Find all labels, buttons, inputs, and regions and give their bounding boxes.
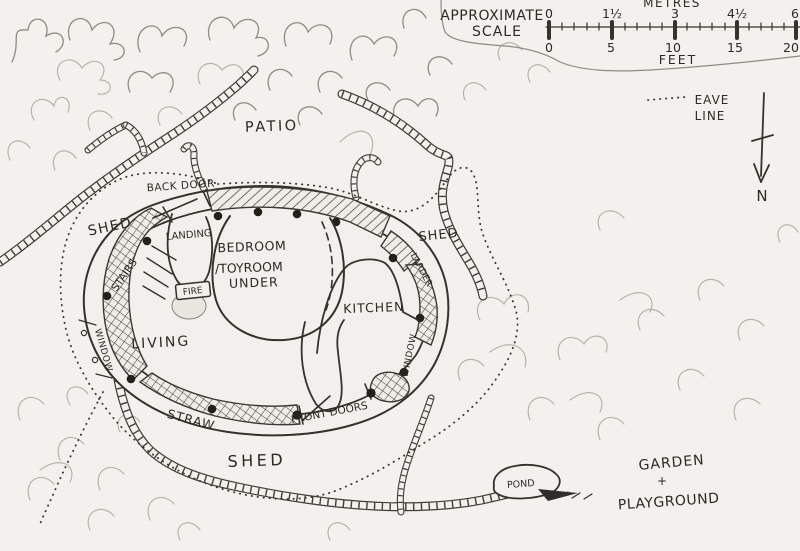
scale-ruler: APPROXIMATE SCALE METRES FEET 0 1½ 3 4½ …: [440, 0, 800, 67]
svg-text:6: 6: [791, 6, 799, 21]
svg-text:0: 0: [545, 40, 553, 55]
scale-heading-line2: SCALE: [472, 24, 522, 40]
eave-line-bottom-left: [40, 392, 103, 524]
scale-feet-ticks: 0 5 10 15 20: [545, 40, 799, 55]
label-pond: POND: [507, 478, 535, 491]
pond-wall-wedge: [538, 489, 578, 501]
eave-line-sample: [648, 97, 685, 100]
svg-text:3: 3: [671, 6, 679, 21]
scale-major-ticks: [549, 22, 796, 38]
svg-text:1½: 1½: [602, 6, 622, 21]
svg-text:20: 20: [783, 40, 799, 55]
svg-text:10: 10: [665, 40, 681, 55]
eave-legend-line2: LINE: [695, 109, 726, 123]
svg-text:0: 0: [545, 6, 553, 21]
eave-legend-line1: EAVE: [695, 93, 730, 107]
trees-right: [458, 211, 798, 440]
scale-heading-line1: APPROXIMATE: [440, 8, 544, 24]
label-kitchen: KITCHEN: [343, 299, 405, 316]
svg-text:4½: 4½: [727, 6, 747, 21]
label-garden-line1: GARDEN: [638, 452, 705, 474]
label-garden-line3: PLAYGROUND: [617, 490, 720, 513]
label-fire: FIRE: [182, 286, 203, 298]
sketch-site-plan: APPROXIMATE SCALE METRES FEET 0 1½ 3 4½ …: [0, 0, 800, 551]
label-patio: PATIO: [245, 118, 299, 136]
scale-metres-ticks: 0 1½ 3 4½ 6: [545, 6, 799, 21]
eave-line-legend: EAVE LINE: [648, 93, 729, 123]
north-label: N: [756, 187, 767, 205]
label-bedroom-line1: BEDROOM: [217, 238, 286, 255]
label-living: LIVING: [131, 333, 191, 352]
label-shed-bottom: SHED: [227, 450, 286, 471]
label-bedroom-line3: UNDER: [229, 274, 279, 291]
svg-text:5: 5: [607, 40, 615, 55]
svg-text:15: 15: [727, 40, 743, 55]
label-garden-line2: +: [657, 474, 667, 488]
north-arrow-icon: [752, 93, 773, 182]
